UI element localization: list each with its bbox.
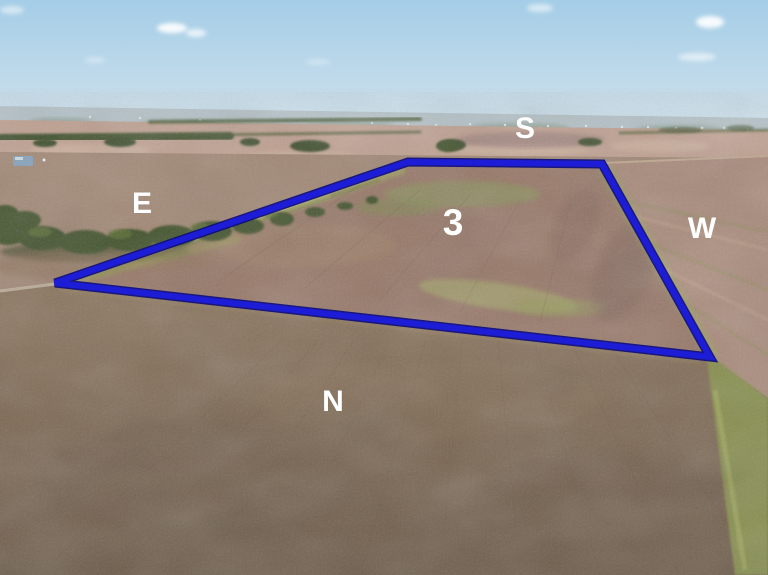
compass-label-west: W <box>688 212 717 245</box>
grain-overlay <box>0 112 768 575</box>
compass-label-north: N <box>322 385 344 418</box>
compass-label-east: E <box>132 187 152 220</box>
compass-label-south: S <box>515 112 535 145</box>
tract-number-label: 3 <box>443 202 464 243</box>
aerial-photo: S E W N 3 <box>0 0 768 575</box>
